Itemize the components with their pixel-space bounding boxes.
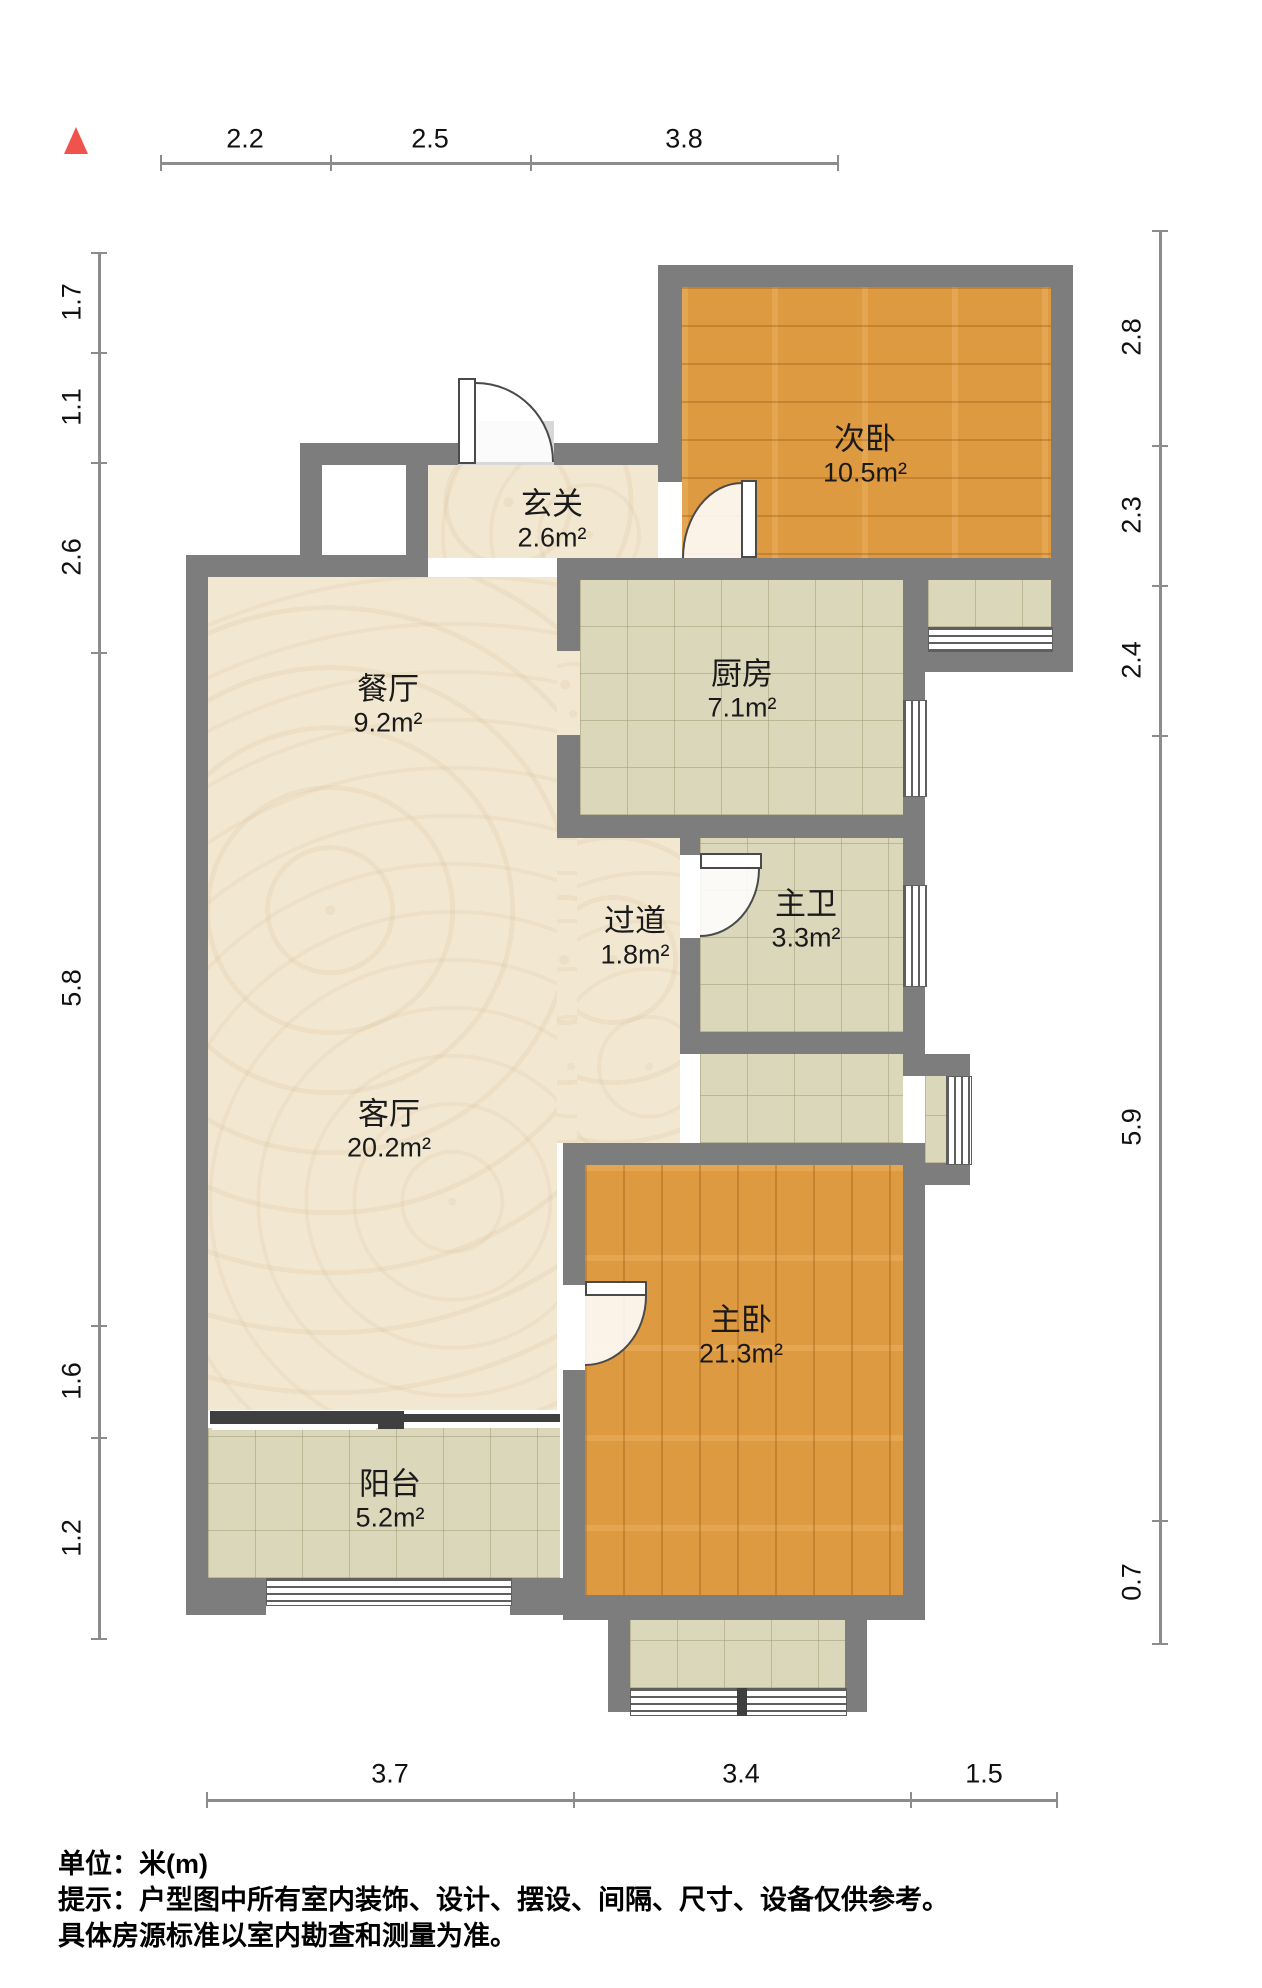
dim-label: 2.3 [1117, 496, 1148, 534]
room-area: 5.2m² [355, 1502, 424, 1533]
window-bay-nook [946, 1076, 972, 1165]
utility-alcove-floor [928, 580, 1051, 627]
wall-segment [1051, 265, 1073, 672]
dim-label: 2.8 [1117, 318, 1148, 356]
entry-door-leaf [458, 378, 476, 464]
window-bathroom [903, 885, 927, 987]
balcony-sliding-door [210, 1411, 402, 1424]
room-label-canting: 餐厅 9.2m² [353, 672, 422, 739]
wall-segment [510, 1578, 585, 1615]
wall-segment [608, 1620, 630, 1712]
wall-segment [563, 1165, 585, 1285]
wall-segment [903, 580, 925, 700]
wall-segment [540, 443, 658, 465]
hall-connector-floor [557, 838, 577, 1143]
ciwo-door-leaf [741, 480, 757, 558]
dim-label: 1.2 [57, 1519, 88, 1557]
wall-segment [680, 838, 700, 855]
room-label-xuanguan: 玄关 2.6m² [517, 487, 586, 554]
room-area: 3.3m² [771, 922, 840, 953]
wall-segment [658, 287, 682, 482]
room-label-keting: 客厅 20.2m² [347, 1097, 431, 1164]
room-area: 21.3m² [699, 1338, 783, 1369]
room-label-chufang: 厨房 7.1m² [707, 657, 776, 724]
balcony-sliding-door-panel [404, 1414, 560, 1422]
room-name: 主卫 [771, 887, 840, 923]
dim-label: 3.7 [371, 1759, 409, 1790]
dim-label: 0.7 [1117, 1563, 1148, 1601]
wall-segment [903, 1054, 970, 1076]
wall-segment [658, 558, 1073, 580]
wall-segment [903, 838, 925, 885]
wall-segment [186, 555, 208, 1615]
wall-segment [557, 815, 703, 838]
room-name: 次卧 [823, 422, 907, 458]
room-name: 餐厅 [353, 672, 422, 708]
dim-label: 1.7 [57, 283, 88, 321]
kitchen-doorway-floor [557, 651, 580, 735]
wall-segment [658, 265, 1073, 287]
dim-label: 5.9 [1117, 1108, 1148, 1146]
window-mullion [737, 1688, 747, 1716]
wall-segment [563, 1143, 925, 1165]
room-label-yangtai: 阳台 5.2m² [355, 1467, 424, 1534]
dim-label: 1.1 [57, 388, 88, 426]
entry-door-swing-arc [476, 382, 554, 462]
wall-segment [557, 558, 658, 580]
room-name: 阳台 [355, 1467, 424, 1503]
dim-label: 2.2 [226, 124, 264, 155]
room-name: 主卧 [699, 1303, 783, 1339]
window-alcove [928, 627, 1053, 652]
wall-segment [406, 465, 428, 555]
zhuwei-door-leaf [700, 853, 762, 869]
bay-window-floor [630, 1620, 845, 1688]
wall-segment [563, 1595, 925, 1620]
wall-segment [186, 555, 428, 577]
floor-plan-page: 次卧 10.5m² 玄关 2.6m² 厨房 7.1m² 餐厅 9.2m² 过道 … [0, 0, 1262, 1988]
room-area: 20.2m² [347, 1132, 431, 1163]
balcony-sliding-door-post [378, 1411, 404, 1429]
zhuwo-door-leaf [585, 1281, 647, 1296]
dim-label: 3.8 [665, 124, 703, 155]
room-guodao-floor [577, 838, 680, 1143]
wall-segment [906, 650, 1073, 672]
wall-segment [563, 1370, 585, 1610]
wall-segment [903, 1165, 925, 1620]
room-name: 厨房 [707, 657, 776, 693]
room-zhuwo-floor [585, 1165, 903, 1595]
dim-label: 1.5 [965, 1759, 1003, 1790]
room-label-zhuwei: 主卫 3.3m² [771, 887, 840, 954]
room-name: 过道 [600, 904, 669, 940]
dim-label: 2.4 [1117, 641, 1148, 679]
wall-segment [557, 580, 580, 651]
footer-unit: 单位：米(m) [58, 1846, 949, 1882]
dim-label: 1.6 [57, 1362, 88, 1400]
room-label-ciwo: 次卧 10.5m² [823, 422, 907, 489]
room-label-zhuwo: 主卧 21.3m² [699, 1303, 783, 1370]
room-label-guodao: 过道 1.8m² [600, 904, 669, 971]
bay-nook-floor [925, 1076, 946, 1163]
balcony-sliding-door-track [212, 1424, 376, 1430]
footer-notes: 单位：米(m) 提示：户型图中所有室内装饰、设计、摆设、间隔、尺寸、设备仅供参考… [58, 1846, 949, 1954]
room-name: 玄关 [517, 487, 586, 523]
room-area: 1.8m² [600, 939, 669, 970]
room-area: 10.5m² [823, 457, 907, 488]
dim-label: 3.4 [722, 1759, 760, 1790]
window-kitchen [903, 700, 927, 797]
room-area: 7.1m² [707, 692, 776, 723]
dim-label: 5.8 [57, 969, 88, 1007]
footer-tip-line1: 提示：户型图中所有室内装饰、设计、摆设、间隔、尺寸、设备仅供参考。 [58, 1882, 949, 1918]
wall-segment [300, 443, 460, 465]
room-area: 2.6m² [517, 522, 586, 553]
wall-segment [680, 1032, 925, 1054]
wall-segment [845, 1620, 867, 1712]
wall-segment [557, 735, 580, 820]
wall-segment [188, 1578, 266, 1615]
dim-label: 2.6 [57, 538, 88, 576]
dim-label: 2.5 [411, 124, 449, 155]
wall-segment [703, 815, 925, 838]
service-strip-floor [700, 1054, 903, 1143]
footer-tip-line2: 具体房源标准以室内勘查和测量为准。 [58, 1918, 949, 1954]
room-area: 9.2m² [353, 707, 422, 738]
window-balcony [266, 1578, 512, 1606]
north-arrow-icon [64, 127, 88, 154]
room-name: 客厅 [347, 1097, 431, 1133]
